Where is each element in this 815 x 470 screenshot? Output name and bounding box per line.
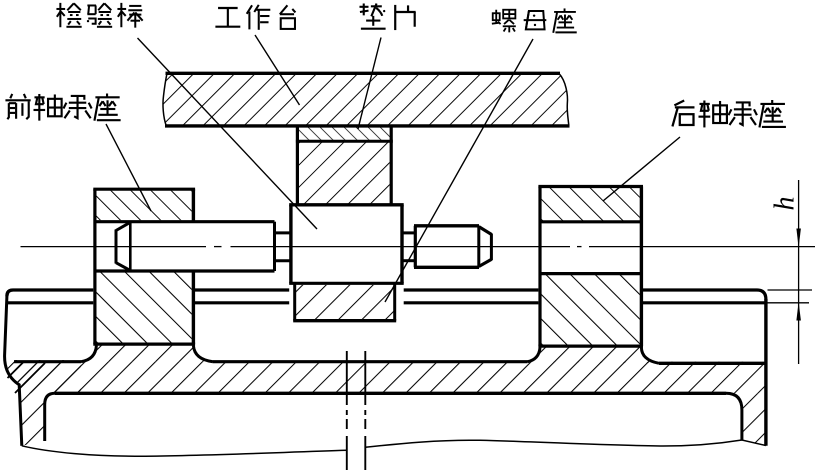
svg-text:h: h (770, 197, 801, 211)
